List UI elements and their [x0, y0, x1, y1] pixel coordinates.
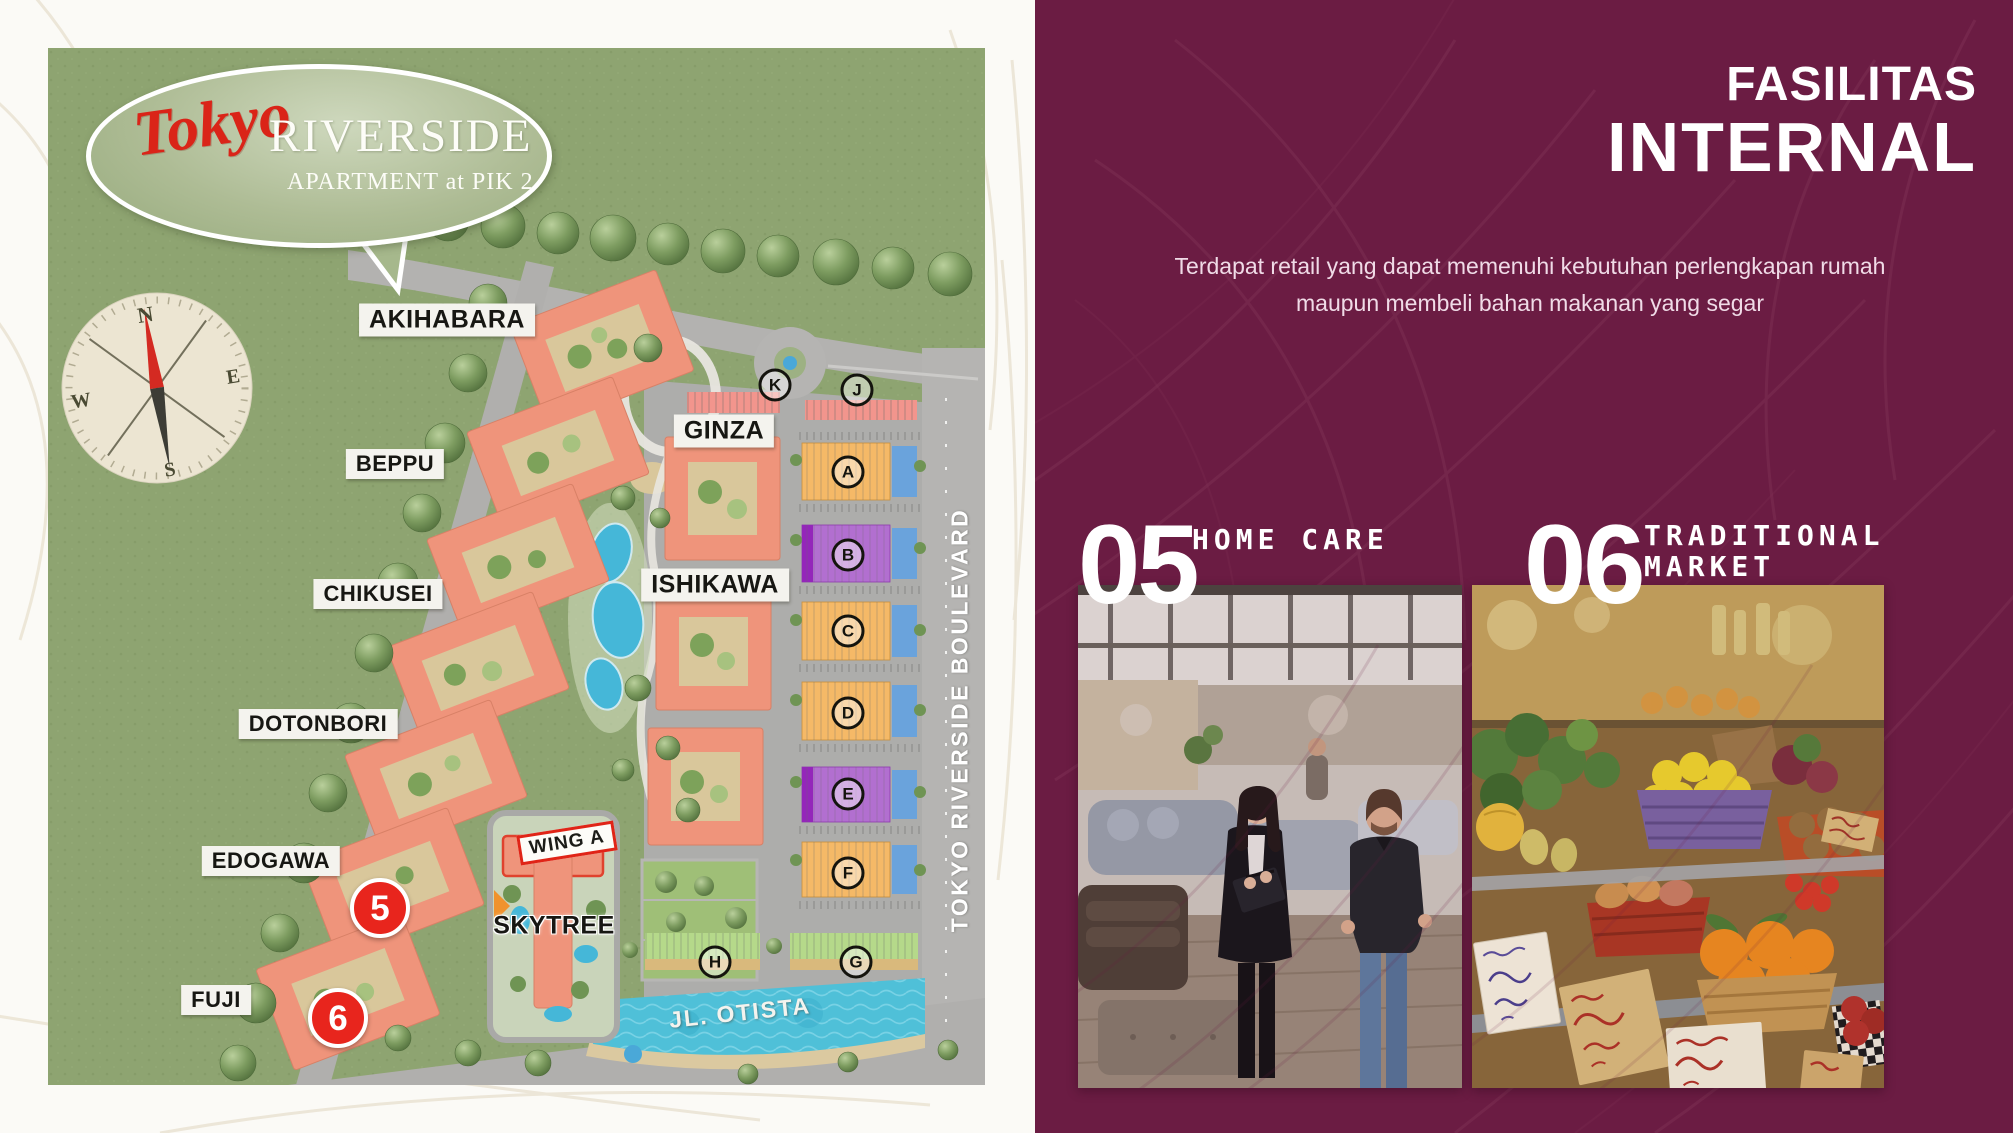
heading-internal: INTERNAL	[1607, 112, 1977, 182]
card-title-home-care: HOME CARE	[1192, 524, 1389, 555]
block-badge-h: H	[699, 946, 732, 979]
area-label-chikusei: CHIKUSEI	[313, 579, 442, 609]
compass-rose: N E S W	[60, 291, 254, 485]
logo-subtitle: APARTMENT at PIK 2	[287, 169, 534, 196]
block-badge-f: F	[832, 857, 865, 890]
fasilitas-panel: FASILITAS INTERNAL Terdapat retail yang …	[1035, 0, 2013, 1133]
brochure-page: Tokyo RIVERSIDE APARTMENT at PIK 2 N E S…	[0, 0, 2013, 1133]
heading-fasilitas: FASILITAS	[1607, 60, 1977, 110]
description-line2: maupun membeli bahan makanan yang segar	[1296, 290, 1764, 316]
area-label-ishikawa: ISHIKAWA	[641, 569, 789, 602]
description-line1: Terdapat retail yang dapat memenuhi kebu…	[1175, 253, 1886, 279]
card-number-05: 05	[1078, 512, 1197, 618]
logo-title: RIVERSIDE	[269, 109, 532, 163]
speech-bubble-body: Tokyo RIVERSIDE APARTMENT at PIK 2	[86, 64, 552, 248]
panel-heading: FASILITAS INTERNAL	[1607, 60, 1977, 182]
home-care-photo	[1078, 585, 1462, 1088]
block-badge-d: D	[832, 697, 865, 730]
card-number-06: 06	[1524, 512, 1643, 618]
block-badge-g: G	[840, 946, 873, 979]
area-label-edogawa: EDOGAWA	[202, 846, 340, 876]
area-label-dotonbori: DOTONBORI	[239, 709, 398, 739]
block-badge-a: A	[832, 456, 865, 489]
area-label-ginza: GINZA	[674, 415, 774, 448]
compass-west: W	[70, 389, 93, 414]
area-label-skytree: SKYTREE	[483, 910, 625, 943]
site-map: Tokyo RIVERSIDE APARTMENT at PIK 2 N E S…	[48, 48, 985, 1085]
block-badge-k: K	[759, 369, 792, 402]
facility-marker-5: 5	[350, 878, 410, 938]
boulevard-road-label: TOKYO RIVERSIDE BOULEVARD	[947, 508, 974, 933]
block-badge-c: C	[832, 615, 865, 648]
panel-description: Terdapat retail yang dapat memenuhi kebu…	[1115, 248, 1945, 323]
traditional-market-photo	[1472, 585, 1884, 1088]
area-label-fuji: FUJI	[181, 985, 251, 1015]
card-title-traditional-market: TRADITIONALMARKET	[1644, 520, 1884, 583]
block-badge-j: J	[841, 374, 874, 407]
facility-marker-6: 6	[308, 988, 368, 1048]
area-label-beppu: BEPPU	[346, 449, 444, 479]
block-badge-e: E	[832, 778, 865, 811]
area-label-akihabara: AKIHABARA	[359, 304, 535, 337]
block-badge-b: B	[832, 539, 865, 572]
